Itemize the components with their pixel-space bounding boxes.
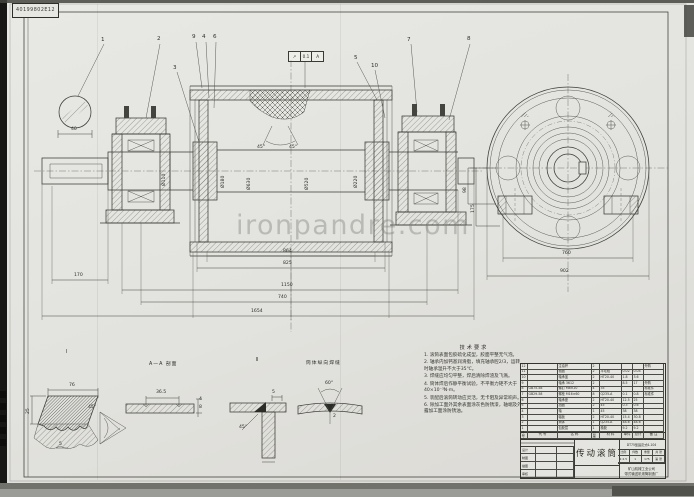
dimension-label: 864 <box>283 250 292 255</box>
bom-header-cell: 总计 <box>633 431 644 439</box>
dimension-label: 98 <box>464 187 469 193</box>
drawing-title: 传动滚筒 <box>574 440 620 465</box>
signature-grid: 设计制图描图审核 <box>521 446 574 478</box>
info-value: 175 <box>642 456 654 463</box>
dimension-label: 1654 <box>251 310 263 315</box>
dimension-label: 76 <box>69 384 75 389</box>
note-line: 2. 轴承内加钙基润滑脂，填充轴承腔2/3，运转时轴承温升不大于35℃。 <box>424 360 524 373</box>
binding-mark <box>0 415 6 422</box>
dimension-label: 2 <box>333 415 336 420</box>
registration-stamp: 40199802E12 <box>12 3 59 18</box>
part-callout: 7 <box>407 38 411 44</box>
info-value: 1 <box>630 456 642 463</box>
scan-edge-strip <box>0 0 7 497</box>
scan-blotch <box>684 5 694 37</box>
note-line: 3. 焊缝应均匀平整，焊后清除焊渣及飞溅。 <box>424 374 524 380</box>
section-label: I <box>66 351 68 356</box>
scan-background <box>0 489 694 497</box>
end-view <box>468 74 668 292</box>
part-callout: 2 <box>157 37 161 43</box>
company-line: 带式输送机滚筒制造厂 <box>625 472 659 476</box>
dimension-label: 8 <box>199 406 202 411</box>
company-name: 矿山机械工业公司带式输送机滚筒制造厂 <box>618 463 665 479</box>
dimension-label: 45° <box>289 146 297 151</box>
main-section-view <box>34 42 482 332</box>
dimension-label: 25 <box>27 408 32 414</box>
geometric-tolerance-frame: ↗ 0.1 A <box>288 51 324 62</box>
tolerance-value: 0.1 <box>300 52 312 61</box>
dimension-label: 4 <box>199 398 202 403</box>
dimension-label: 760 <box>562 252 571 257</box>
info-label: 共 张 <box>653 449 665 456</box>
dimension-label: 825 <box>283 262 292 267</box>
technical-notes: 技术要求 1. 滚筒表面包胶硫化成型，胶面平整无气泡。2. 轴承内加钙基润滑脂，… <box>424 344 524 417</box>
part-callout: 3 <box>173 66 177 72</box>
bom-header-cell: 备 注 <box>644 431 664 439</box>
dimension-label: 175 <box>472 204 477 213</box>
sign-cell: 制图 <box>521 454 536 462</box>
tolerance-datum: A <box>311 52 323 61</box>
title-subcell <box>574 465 620 479</box>
part-callout: 8 <box>467 37 471 43</box>
scanned-drawing-page: ironpandre.com 40199802E12 ↗ 0.1 A 技术要求 … <box>0 0 694 497</box>
sign-cell <box>536 446 557 454</box>
sign-cell: 设计 <box>521 446 536 454</box>
notes-title: 技术要求 <box>424 344 524 351</box>
dimension-label: Ø220 <box>355 176 360 188</box>
sign-cell <box>557 462 574 470</box>
dimension-label: 902 <box>560 270 569 275</box>
dimension-label: 5 <box>59 443 62 448</box>
part-callout: 1 <box>101 38 105 44</box>
bom-header-cell: 代 号 <box>528 431 558 439</box>
info-label: 重量 <box>642 449 654 456</box>
dimension-label: 740 <box>278 296 287 301</box>
sign-cell: 审核 <box>521 470 536 478</box>
dimension-label: Ø110 <box>163 174 168 186</box>
dimension-label: Ø630 <box>248 178 253 190</box>
section-label: A—A 剖面 <box>149 363 177 368</box>
watermark: ironpandre.com <box>236 210 470 241</box>
notes-list: 1. 滚筒表面包胶硫化成型，胶面平整无气泡。2. 轴承内加钙基润滑脂，填充轴承腔… <box>424 353 524 416</box>
info-label: 件数 <box>630 449 642 456</box>
part-callout: 4 <box>202 35 206 41</box>
dimension-label: 45° <box>239 426 247 431</box>
dimension-label: 60° <box>325 382 333 387</box>
dimension-label: 5 <box>272 391 275 396</box>
bom-header-cell: 数量 <box>592 431 600 439</box>
sign-cell <box>536 454 557 462</box>
bom-header-cell: 单件 <box>622 431 633 439</box>
scale-info-grid: 比例件数重量共 张1:2.51175第 张 <box>618 449 665 463</box>
dimension-label: 36.5 <box>156 391 166 396</box>
section-label: 筒体纵向焊缝 <box>306 362 341 367</box>
bom-header-cell: 序号 <box>521 431 528 439</box>
sign-cell <box>557 454 574 462</box>
binding-mark <box>0 403 6 410</box>
sign-cell <box>557 446 574 454</box>
note-line: 1. 滚筒表面包胶硫化成型，胶面平整无气泡。 <box>424 353 524 359</box>
sign-cell <box>536 462 557 470</box>
dimension-label: 40 <box>71 128 77 133</box>
bom-header-cell: 材 料 <box>600 431 622 439</box>
part-callout: 5 <box>354 56 358 62</box>
tolerance-symbol: ↗ <box>289 52 300 61</box>
note-line: 5. 装配后滚筒转动应灵活，无卡阻及异常响声。 <box>424 396 524 402</box>
binding-mark <box>0 439 6 446</box>
info-value: 第 张 <box>653 456 665 463</box>
info-value: 1:2.5 <box>618 456 630 463</box>
binding-mark <box>0 427 6 434</box>
dimension-label: Ø180 <box>222 176 227 188</box>
note-line: 4. 筒体焊后作静平衡试验，不平衡力矩不大于40×10⁻³N·m。 <box>424 382 524 395</box>
dimension-label: 45° <box>257 146 265 151</box>
sign-cell <box>557 470 574 478</box>
dimension-label: 1150 <box>281 284 293 289</box>
part-callout: 9 <box>192 35 196 41</box>
sign-cell: 描图 <box>521 462 536 470</box>
part-callout: 10 <box>371 64 378 70</box>
part-callout: 6 <box>213 35 217 41</box>
detail-views <box>30 388 362 462</box>
binding-mark <box>0 391 6 398</box>
section-label: Ⅱ <box>256 359 259 364</box>
scan-blotch <box>612 486 694 496</box>
note-line: 6. 除加工面外其余表面涂灰色防锈漆，轴端及外露加工面涂防锈油。 <box>424 403 524 416</box>
title-block: 设计制图描图审核 传动滚筒 DT75型固定式4-104 比例件数重量共 张1:2… <box>520 439 666 479</box>
dimension-label: Ø520 <box>306 178 311 190</box>
dimension-label: 45° <box>88 406 96 411</box>
info-label: 比例 <box>618 449 630 456</box>
scan-edge-top <box>0 0 694 3</box>
parts-list-table: 12注油杯2外购11毡圈2羊毛毡0.020.0410轴承盖2HT20-401.8… <box>520 363 666 433</box>
bom-header-cell: 名 称 <box>558 431 592 439</box>
sign-cell <box>536 470 557 478</box>
dimension-label: 170 <box>74 274 83 279</box>
